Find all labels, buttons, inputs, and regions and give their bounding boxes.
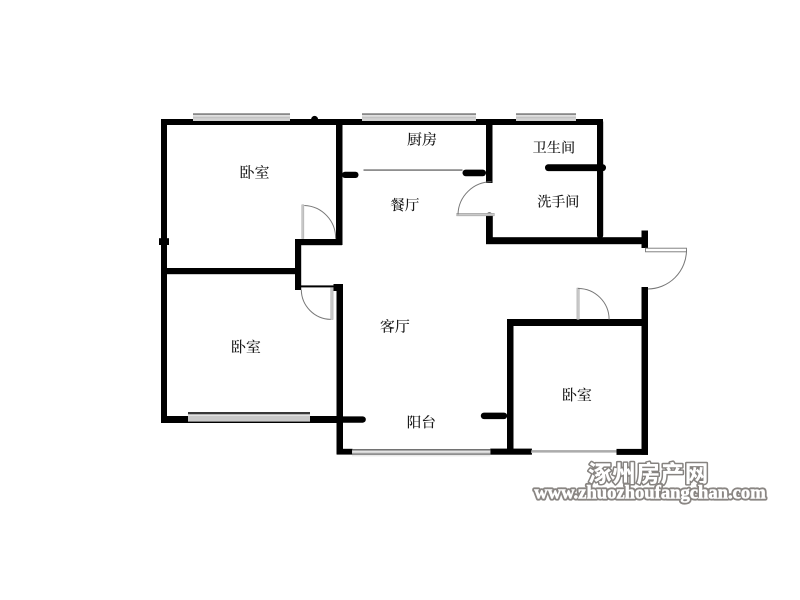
svg-text:www.zhuozhoufangchan.com: www.zhuozhoufangchan.com [534, 483, 766, 504]
